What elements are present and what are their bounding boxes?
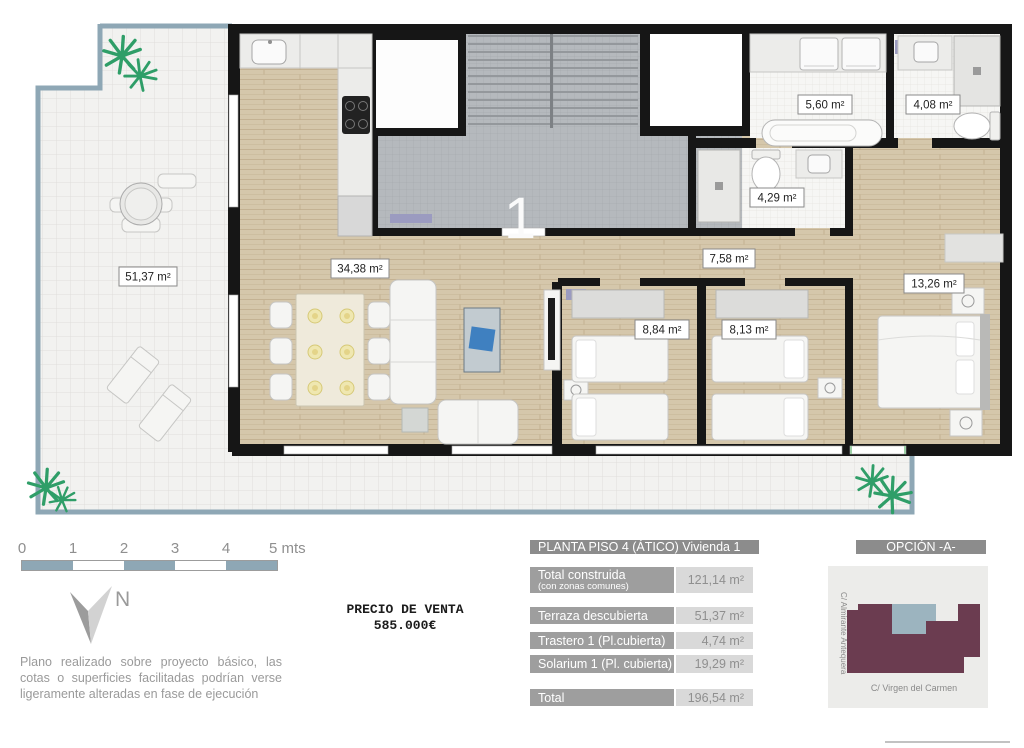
svg-text:13,26 m²: 13,26 m²	[911, 279, 957, 291]
scale-tick: 0	[10, 540, 34, 557]
sofa-long	[390, 280, 436, 404]
row-label: Solarium 1 (Pl. cubierta)	[530, 655, 674, 673]
row-value: 19,29 m²	[676, 655, 753, 673]
washer	[800, 38, 838, 70]
total-value: 196,54 m²	[676, 689, 753, 706]
book	[469, 326, 496, 351]
elevator-shaft	[372, 36, 462, 132]
bathtub	[762, 120, 882, 146]
price-block: PRECIO DE VENTA 585.000€	[330, 602, 480, 634]
svg-text:5,60 m²: 5,60 m²	[806, 100, 845, 112]
scale-bar: 0 1 2 3 4 5 mts	[15, 540, 315, 582]
dining-set	[270, 294, 390, 406]
room-label-dormitorio-2: 8,13 m²	[722, 320, 776, 339]
room-label-lavadero: 5,60 m²	[798, 95, 852, 114]
sheet-edge-line	[885, 741, 1010, 743]
svg-text:4,08 m²: 4,08 m²	[914, 100, 953, 112]
svg-text:8,13 m²: 8,13 m²	[730, 325, 769, 337]
scale-tick: 5 mts	[269, 540, 329, 557]
kitchen-cabinet	[338, 196, 372, 236]
lightwell-void	[650, 28, 742, 126]
total-label: Total	[530, 689, 674, 706]
floor-plan: 1 51,37 m² 34,38 m² 7,58 m² 8,84 m² 8,13…	[0, 0, 1024, 540]
compass-dark-wing	[70, 592, 91, 644]
wardrobe	[572, 290, 664, 318]
side-table	[402, 408, 428, 432]
svg-text:34,38 m²: 34,38 m²	[337, 264, 383, 276]
row-value: 51,37 m²	[676, 607, 753, 624]
room-label-dormitorio-principal: 13,26 m²	[904, 274, 964, 293]
svg-text:8,84 m²: 8,84 m²	[643, 325, 682, 337]
row-value: 121,14 m²	[676, 567, 753, 593]
svg-text:51,37 m²: 51,37 m²	[125, 272, 171, 284]
disclaimer-text: Plano realizado sobre proyecto básico, l…	[20, 654, 282, 702]
scale-tick: 3	[163, 540, 187, 557]
price-value: 585.000€	[330, 618, 480, 634]
svg-text:4,29 m²: 4,29 m²	[758, 193, 797, 205]
toilet	[752, 157, 780, 191]
bedroom-1-furniture	[564, 290, 668, 440]
headboard	[980, 314, 990, 410]
unit-number: 1	[504, 186, 536, 251]
floorplan-sheet: 1 51,37 m² 34,38 m² 7,58 m² 8,84 m² 8,13…	[0, 0, 1024, 748]
sofa-loveseat	[438, 400, 518, 444]
north-arrow: N	[55, 578, 155, 656]
toilet	[954, 113, 990, 139]
row-label: Trastero 1 (Pl.cubierta)	[530, 632, 674, 649]
tv	[548, 298, 555, 360]
table-title: PLANTA PISO 4 (ÁTICO) Vivienda 1	[530, 540, 759, 554]
cooktop	[342, 96, 370, 134]
dryer	[842, 38, 880, 70]
wardrobe	[716, 290, 808, 318]
scale-tick: 4	[214, 540, 238, 557]
room-label-terraza: 51,37 m²	[119, 267, 177, 286]
room-label-bano-1: 4,08 m²	[906, 95, 960, 114]
coffee-table	[464, 308, 500, 372]
table-option: OPCIÓN -A-	[856, 540, 986, 554]
tv-unit	[544, 290, 560, 370]
location-map: C/ Almirante Antequera C/ Virgen del Car…	[828, 566, 988, 708]
room-label-salon: 34,38 m²	[331, 259, 389, 278]
row-label: Total construida (con zonas comunes)	[530, 567, 674, 593]
location-map-svg: C/ Almirante Antequera C/ Virgen del Car…	[828, 566, 988, 708]
row-value: 4,74 m²	[676, 632, 753, 649]
svg-text:7,58 m²: 7,58 m²	[710, 254, 749, 266]
room-label-dormitorio-1: 8,84 m²	[635, 320, 689, 339]
room-label-pasillo: 7,58 m²	[703, 249, 755, 268]
compass-light-wing	[88, 586, 112, 644]
row-label: Terraza descubierta	[530, 607, 674, 624]
room-label-bano-2: 4,29 m²	[750, 188, 804, 207]
nightstand	[950, 410, 982, 436]
scale-bar-segments	[22, 561, 277, 570]
scale-tick: 2	[112, 540, 136, 557]
north-label: N	[115, 588, 130, 611]
price-title: PRECIO DE VENTA	[330, 602, 480, 618]
street-vertical-label: C/ Almirante Antequera	[839, 592, 848, 675]
nightstand	[818, 378, 842, 398]
street-horizontal-label: C/ Virgen del Carmen	[871, 683, 957, 693]
scale-tick: 1	[61, 540, 85, 557]
closet	[945, 234, 1003, 262]
